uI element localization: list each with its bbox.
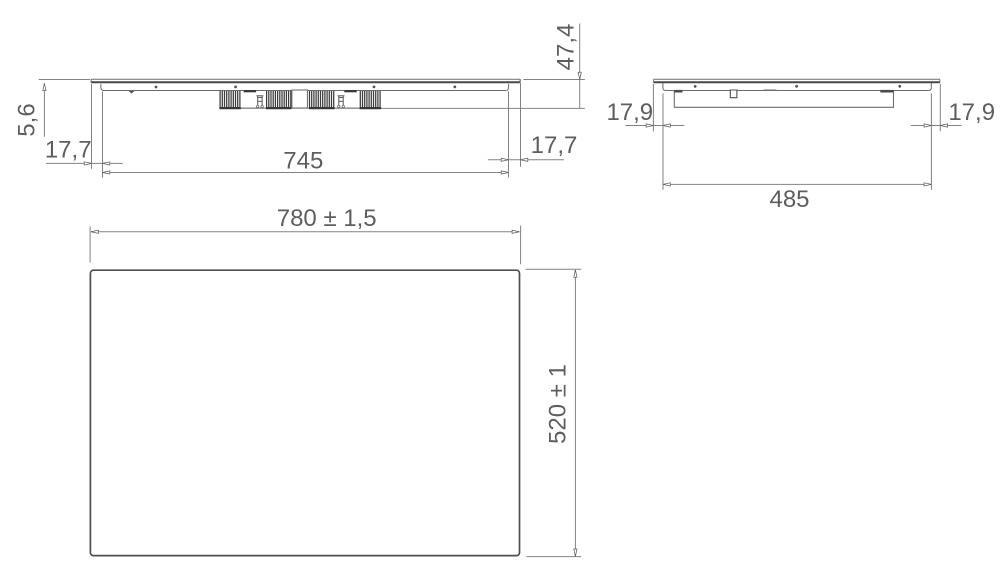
svg-text:745: 745	[283, 148, 323, 175]
svg-text:17,9: 17,9	[948, 99, 995, 126]
svg-text:485: 485	[769, 186, 809, 213]
svg-text:5,6: 5,6	[14, 103, 41, 136]
svg-text:47,4: 47,4	[553, 24, 580, 71]
svg-text:780 ± 1,5: 780 ± 1,5	[277, 205, 377, 232]
svg-text:17,7: 17,7	[531, 132, 578, 159]
svg-text:17,7: 17,7	[45, 137, 92, 164]
svg-text:520 ± 1: 520 ± 1	[545, 364, 572, 444]
svg-text:17,9: 17,9	[606, 99, 653, 126]
